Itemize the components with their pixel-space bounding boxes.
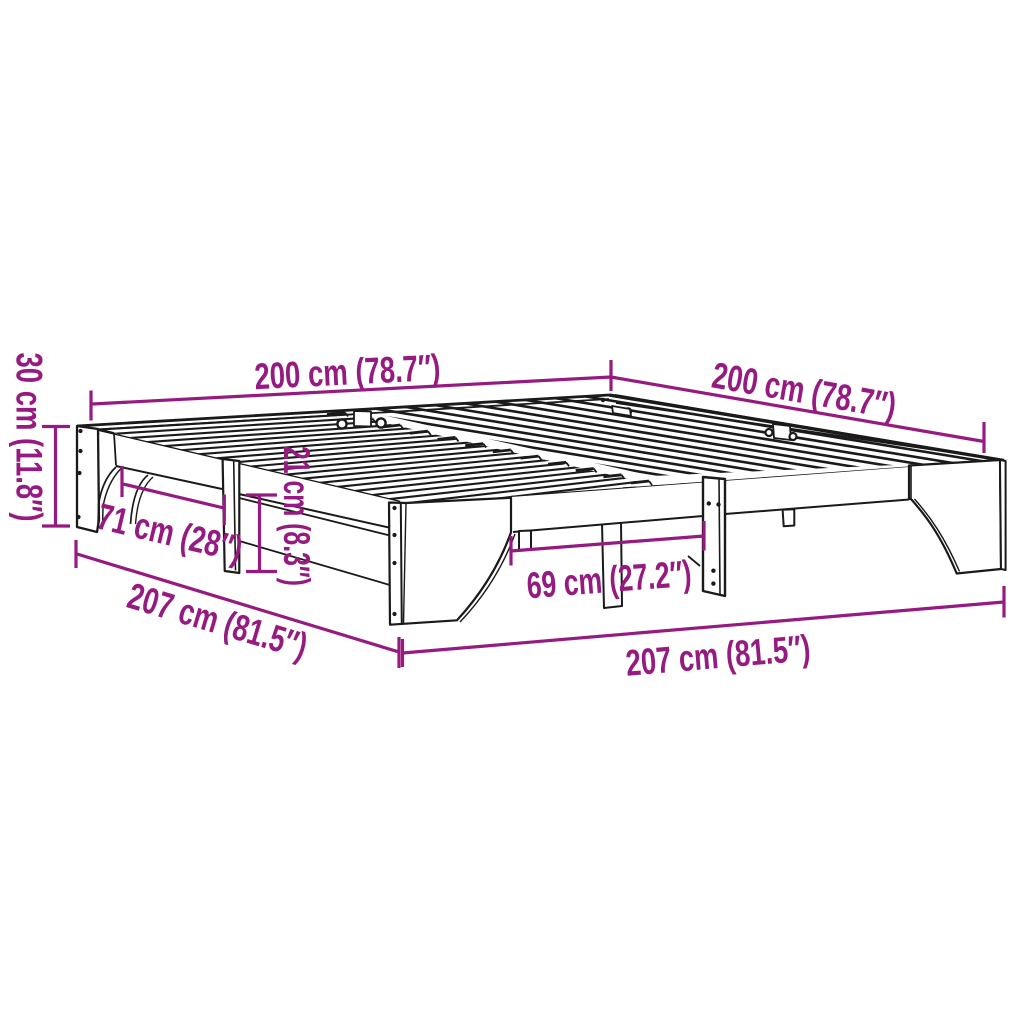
svg-text:30 cm (11.8″): 30 cm (11.8″) (9, 353, 50, 522)
svg-text:21 cm (8.3″): 21 cm (8.3″) (276, 446, 317, 586)
